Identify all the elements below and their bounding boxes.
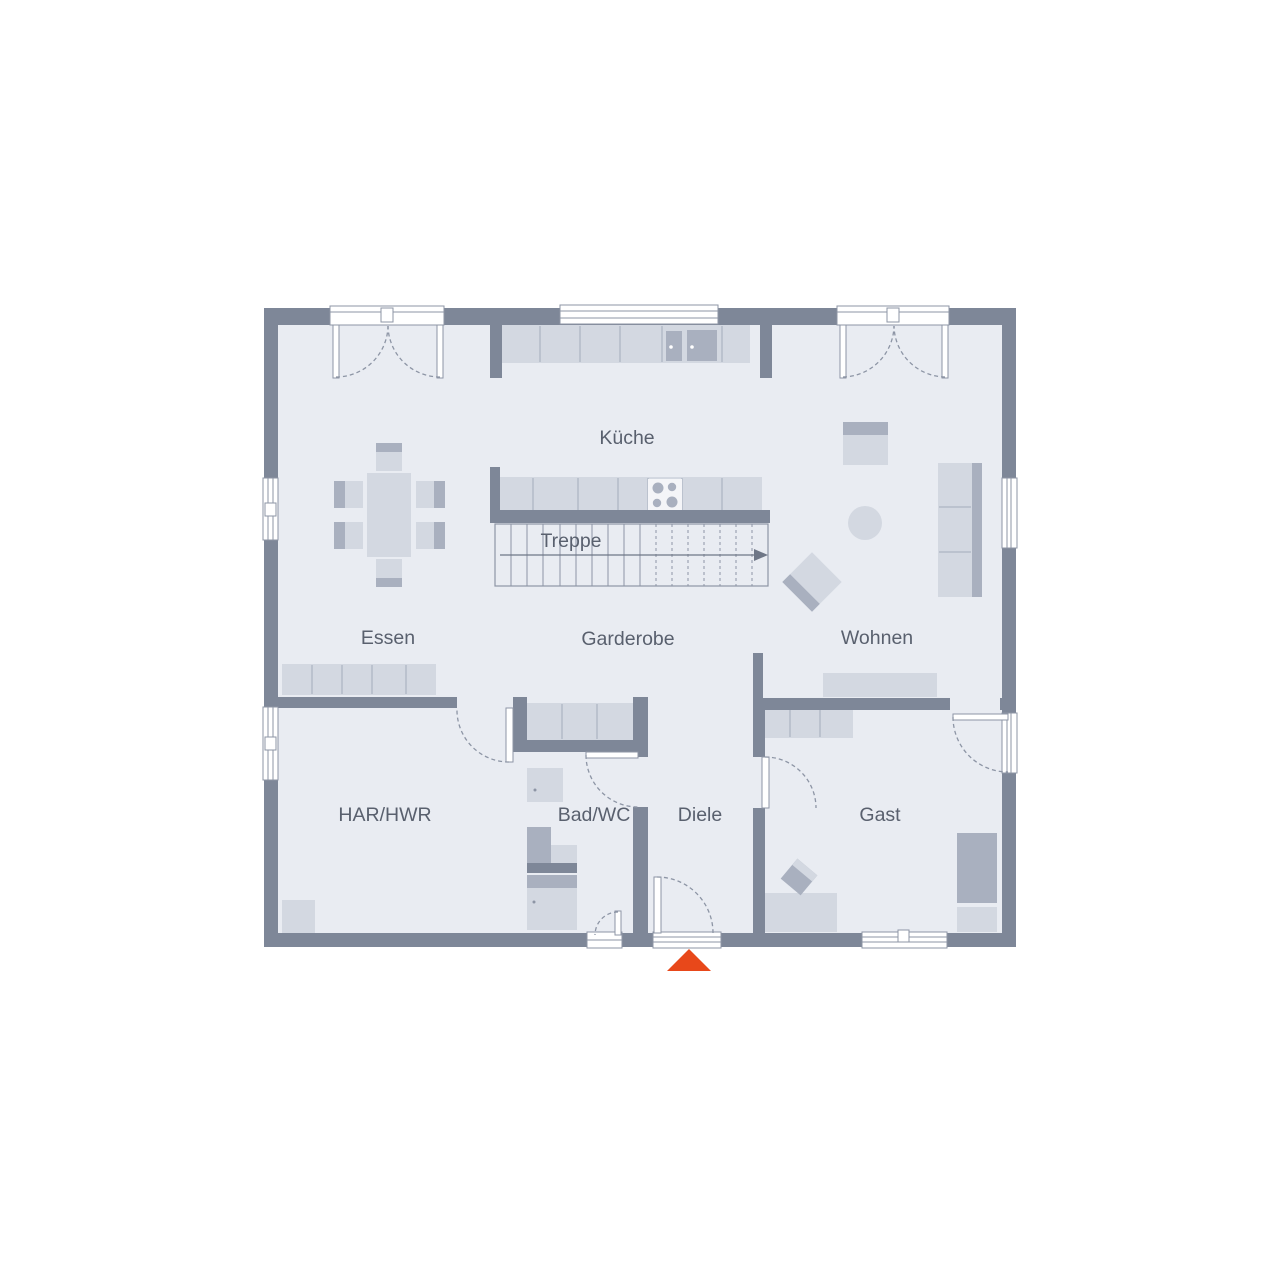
window-kueche	[560, 305, 718, 324]
washing-machine	[527, 888, 577, 930]
label-garderobe: Garderobe	[581, 628, 674, 650]
side-table	[848, 506, 882, 540]
shower	[527, 827, 551, 863]
window-gast-side	[1002, 713, 1017, 773]
wardrobe-gast	[765, 708, 853, 738]
sink	[527, 768, 563, 802]
kitchen-counter-top	[502, 325, 750, 363]
appliance-icon	[666, 331, 682, 361]
label-essen: Essen	[361, 627, 415, 649]
bed	[957, 833, 997, 932]
desk	[765, 893, 837, 932]
label-wohnen: Wohnen	[841, 627, 913, 649]
window-gast-bottom	[862, 930, 947, 948]
label-bad-wc: Bad/WC	[558, 804, 631, 826]
label-kueche: Küche	[599, 427, 654, 449]
entrance-arrow-icon	[667, 949, 711, 971]
label-treppe: Treppe	[540, 530, 601, 552]
cooktop-icon	[648, 479, 682, 510]
stairs	[495, 524, 768, 586]
floor-plan: Küche Treppe Essen Garderobe Wohnen HAR/…	[0, 0, 1280, 1280]
window-har	[263, 707, 278, 780]
window-essen	[263, 478, 278, 540]
wardrobe-garderobe	[527, 703, 633, 740]
sideboard-wohnen	[823, 673, 937, 697]
sofa	[938, 463, 982, 597]
toilet	[551, 845, 577, 863]
kitchen-island	[500, 477, 762, 511]
label-gast: Gast	[859, 804, 901, 826]
dining-table	[367, 473, 411, 557]
label-har-hwr: HAR/HWR	[338, 804, 431, 826]
window-wohnen	[1002, 478, 1017, 548]
armchair	[843, 422, 888, 435]
wall-outer-right	[1002, 308, 1016, 947]
door-handle-icon	[887, 308, 899, 322]
sideboard-essen	[282, 664, 436, 695]
wall-outer-left	[264, 308, 278, 947]
label-diele: Diele	[678, 804, 722, 826]
door-handle-icon	[381, 308, 393, 322]
cabinet-har	[282, 900, 315, 933]
